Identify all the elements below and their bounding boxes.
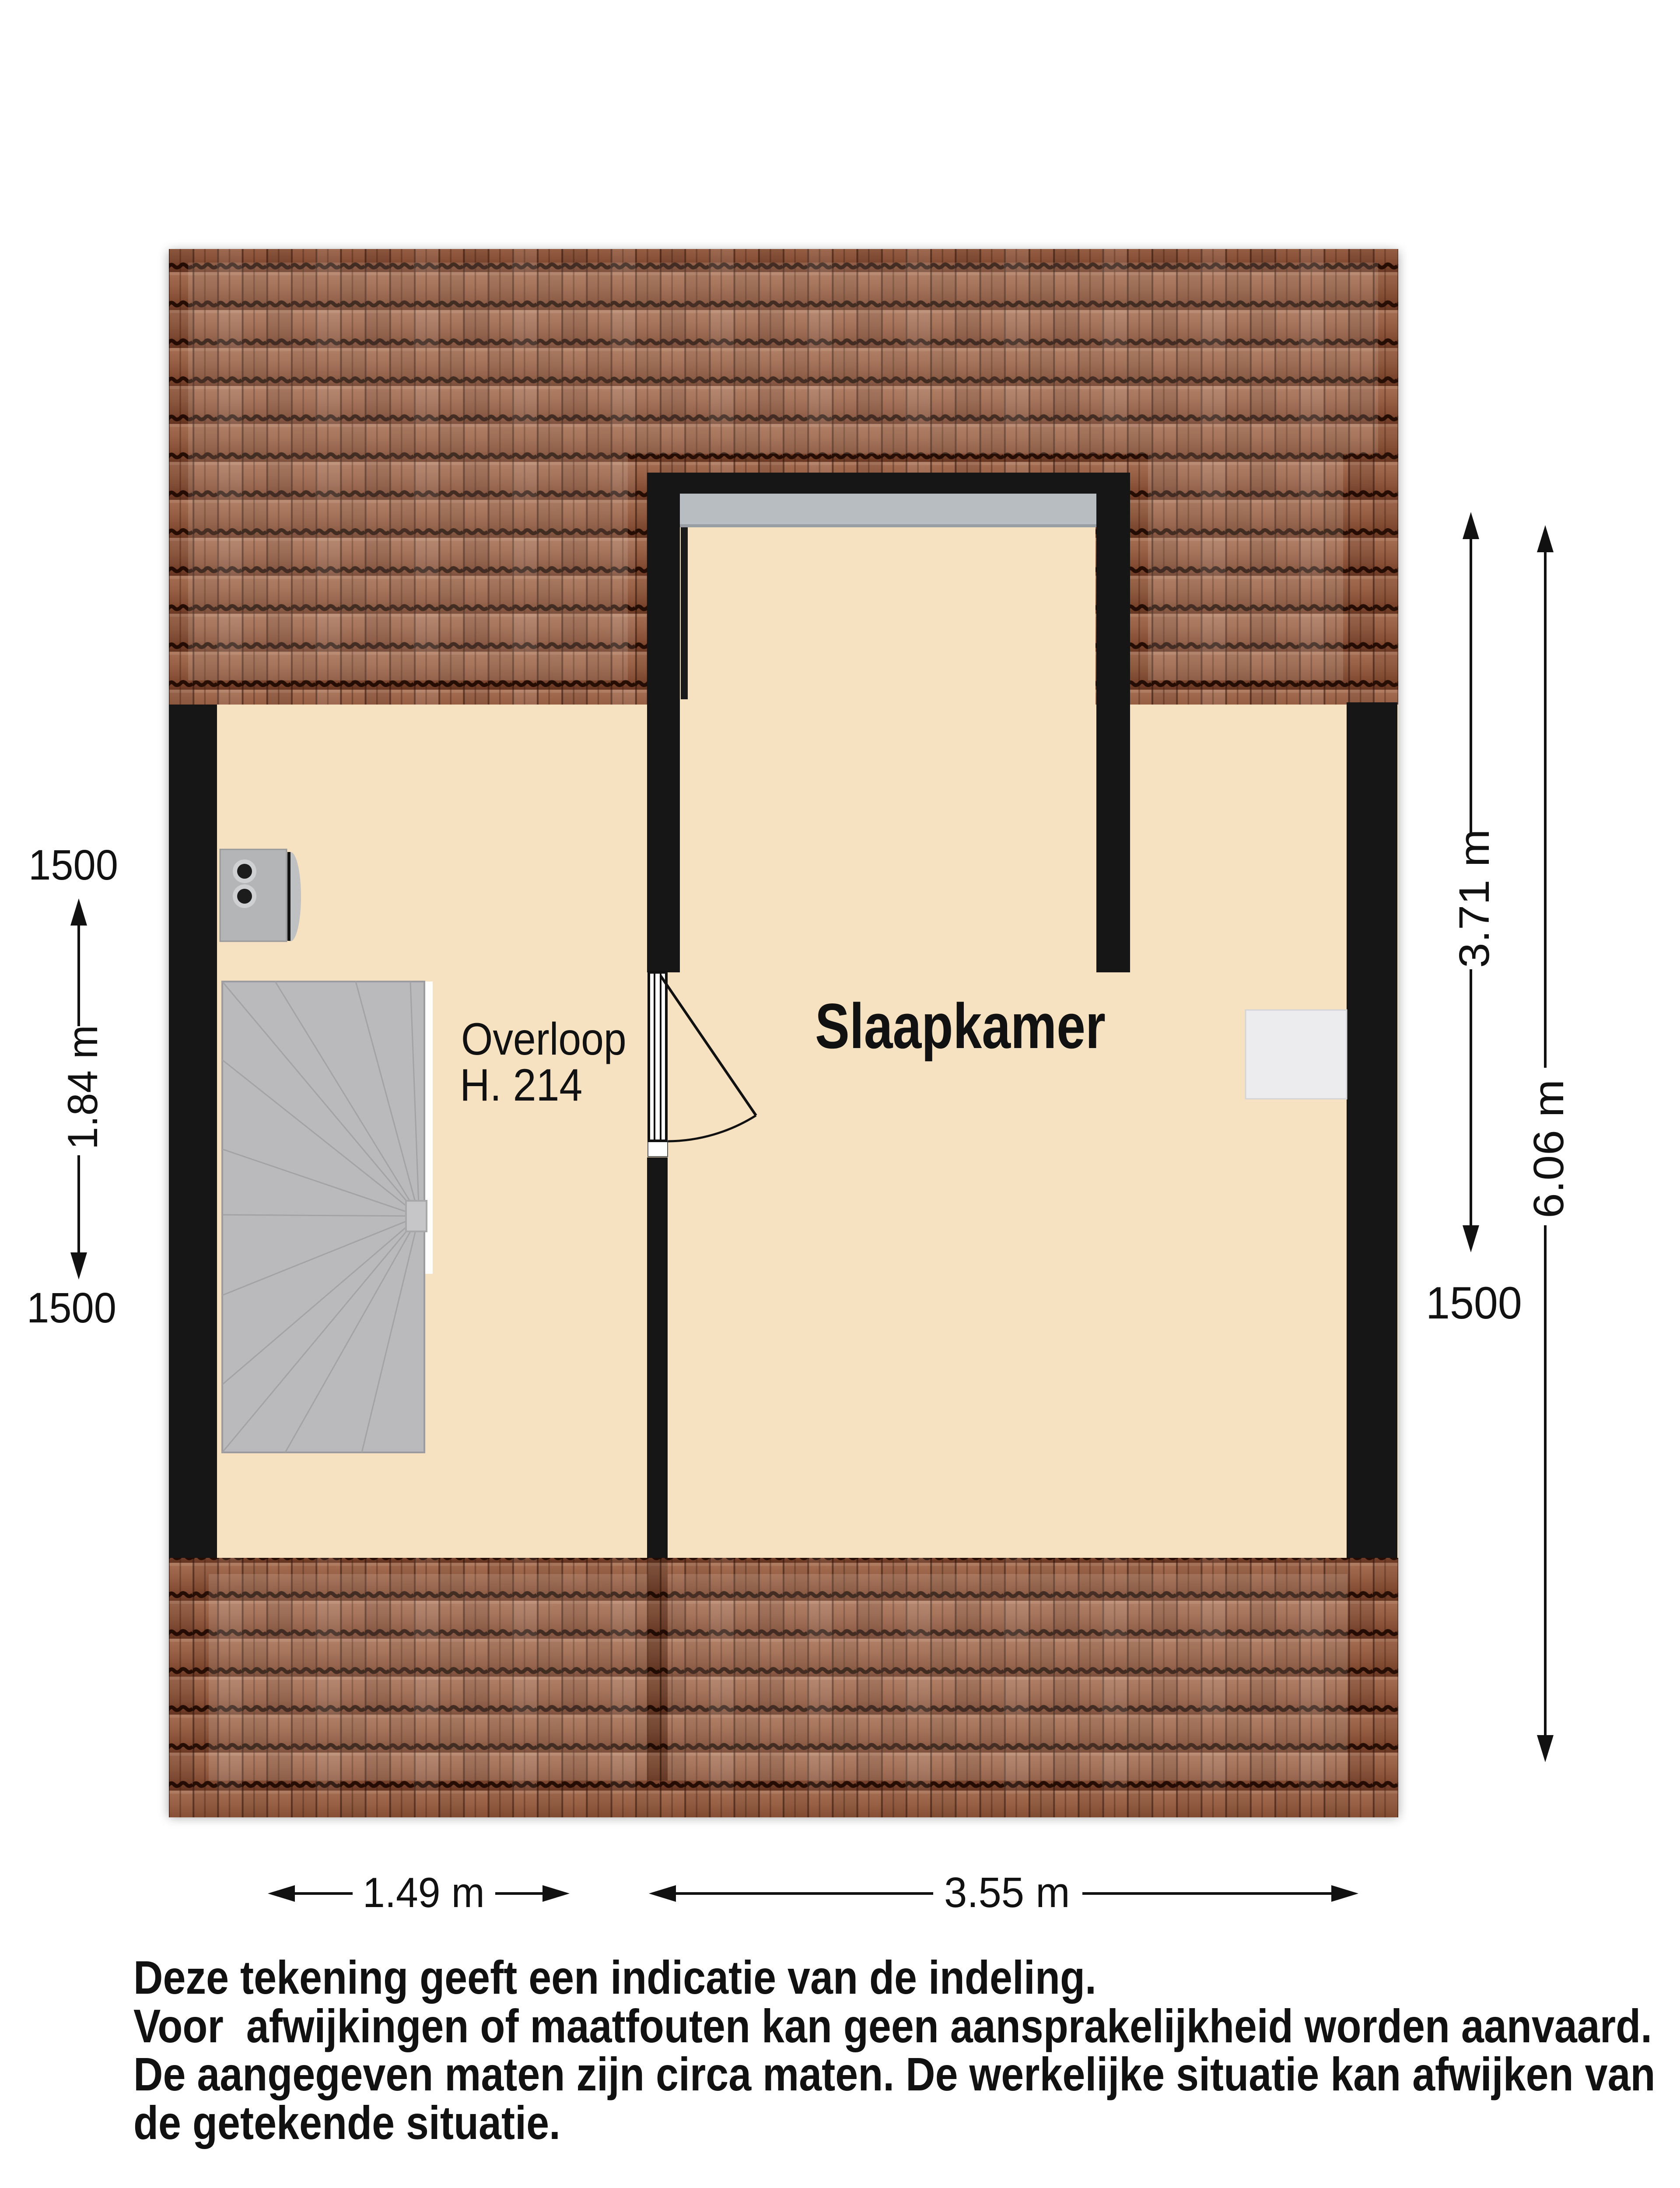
svg-text:1.49 m: 1.49 m: [363, 1869, 485, 1916]
svg-text:1500: 1500: [28, 842, 118, 889]
svg-text:Slaapkamer: Slaapkamer: [815, 991, 1106, 1062]
svg-text:Voor afwijkingen of maatfoute: Voor afwijkingen of maatfouten kan geen …: [133, 2000, 1652, 2053]
svg-text:Overloop: Overloop: [461, 1013, 626, 1064]
svg-text:3.55 m: 3.55 m: [944, 1869, 1070, 1917]
svg-text:De aangegeven maten zijn circa: De aangegeven maten zijn circa maten. De…: [133, 2048, 1655, 2101]
svg-text:de getekende situatie.: de getekende situatie.: [133, 2097, 560, 2149]
svg-text:3.71 m: 3.71 m: [1451, 829, 1498, 968]
svg-text:1.84 m: 1.84 m: [59, 1025, 106, 1150]
svg-text:H. 214: H. 214: [460, 1060, 582, 1111]
svg-text:1500: 1500: [1426, 1278, 1522, 1329]
svg-text:6.06 m: 6.06 m: [1525, 1080, 1572, 1218]
svg-text:1500: 1500: [27, 1284, 116, 1332]
svg-text:Deze tekening geeft een indica: Deze tekening geeft een indicatie van de…: [133, 1952, 1096, 2004]
